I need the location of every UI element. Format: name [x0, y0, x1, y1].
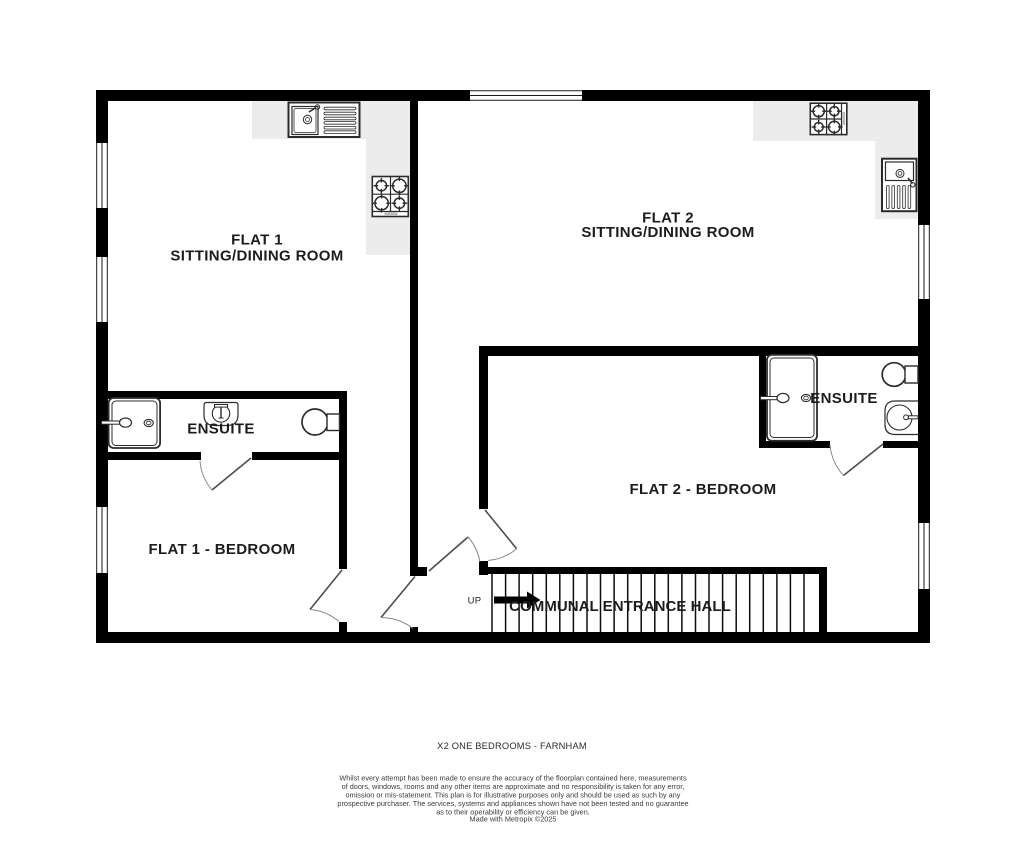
svg-text:UP: UP: [468, 596, 482, 607]
svg-text:SITTING/DINING ROOM: SITTING/DINING ROOM: [581, 224, 754, 241]
svg-text:COMMUNAL ENTRANCE HALL: COMMUNAL ENTRANCE HALL: [509, 598, 731, 615]
svg-text:SITTING/DINING ROOM: SITTING/DINING ROOM: [170, 248, 343, 265]
svg-text:FLAT 2 - BEDROOM: FLAT 2 - BEDROOM: [630, 481, 777, 498]
svg-text:ENSUITE: ENSUITE: [187, 421, 254, 438]
svg-text:FLAT 1: FLAT 1: [231, 232, 283, 249]
svg-text:X2 ONE BEDROOMS - FARNHAM: X2 ONE BEDROOMS - FARNHAM: [437, 741, 587, 751]
svg-text:ENSUITE: ENSUITE: [810, 390, 877, 407]
svg-text:FLAT 1 - BEDROOM: FLAT 1 - BEDROOM: [149, 541, 296, 558]
